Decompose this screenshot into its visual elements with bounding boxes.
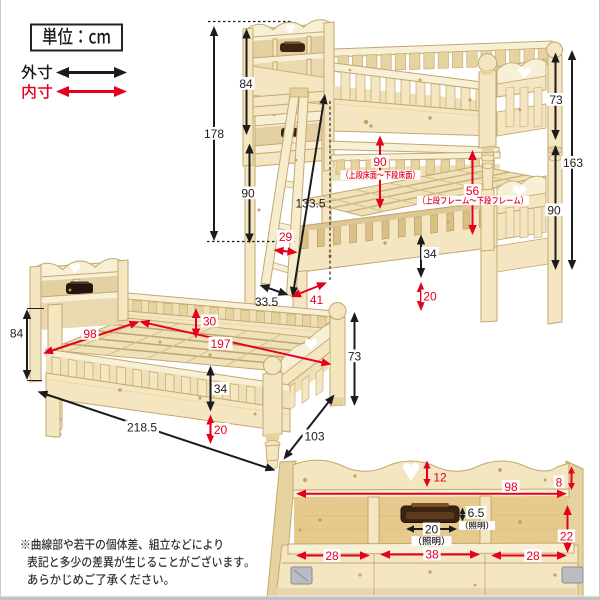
svg-text:84: 84 [10,326,24,340]
svg-text:90: 90 [547,203,561,217]
svg-text:29: 29 [279,230,293,244]
svg-text:90: 90 [373,155,387,169]
svg-text:8: 8 [556,475,563,489]
svg-text:163: 163 [563,156,583,170]
svg-text:22: 22 [560,529,574,543]
svg-text:20: 20 [425,522,439,536]
svg-text:20: 20 [423,289,437,303]
svg-text:73: 73 [348,349,362,363]
svg-text:178: 178 [204,127,224,141]
svg-text:56: 56 [466,184,480,198]
svg-text:33.5: 33.5 [255,295,279,309]
svg-text:133.5: 133.5 [295,196,325,210]
svg-text:218.5: 218.5 [127,420,157,434]
svg-text:34: 34 [423,247,437,261]
svg-text:30: 30 [203,314,217,328]
svg-text:12: 12 [433,470,447,484]
svg-text:103: 103 [304,429,324,443]
svg-text:73: 73 [549,93,563,107]
svg-text:38: 38 [425,547,439,561]
svg-text:41: 41 [310,293,324,307]
svg-text:34: 34 [214,382,228,396]
svg-text:90: 90 [241,186,255,200]
svg-text:84: 84 [239,77,253,91]
svg-text:28: 28 [526,549,540,563]
svg-text:98: 98 [504,480,518,494]
svg-text:28: 28 [325,549,339,563]
svg-text:6.5: 6.5 [468,506,485,520]
svg-text:197: 197 [210,337,230,351]
svg-text:20: 20 [214,423,228,437]
svg-text:98: 98 [83,327,97,341]
